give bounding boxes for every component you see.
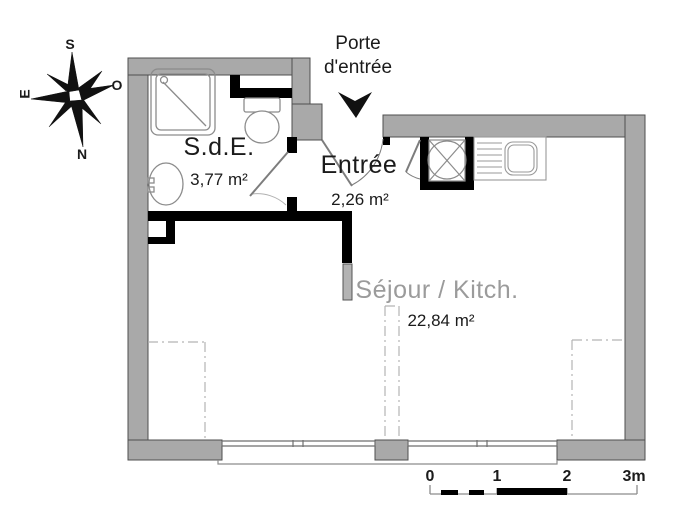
entry-door-label: Porte d'entrée — [324, 32, 392, 80]
compass-west-label: O — [112, 77, 123, 93]
scale-tick-1: 1 — [493, 468, 502, 486]
entry-arrow-icon — [338, 92, 372, 118]
scale-tick-0: 0 — [426, 468, 435, 486]
room-area-sde: 3,77 m² — [190, 170, 248, 190]
ceiling-slope-lines — [148, 306, 625, 440]
compass-east-label: E — [17, 89, 33, 98]
scale-tick-3m: 3m — [622, 468, 645, 486]
floor-plan-page: Porte d'entrée S O N E S.d.E. 3,77 m² En… — [0, 0, 700, 525]
exterior-walls — [128, 58, 645, 460]
scale-tick-2: 2 — [563, 468, 572, 486]
compass-north-label: N — [77, 146, 87, 162]
room-area-sejour: 22,84 m² — [407, 311, 474, 331]
window-left — [222, 440, 375, 447]
room-name-sejour: Séjour / Kitch. — [355, 276, 518, 305]
sde-door-leaf — [250, 152, 288, 205]
shower-icon — [151, 69, 215, 135]
room-name-sde: S.d.E. — [183, 133, 254, 162]
window-right — [408, 440, 557, 447]
compass-south-label: S — [65, 36, 74, 52]
closet-door-leaf — [406, 140, 420, 179]
room-name-entree: Entrée — [321, 151, 398, 180]
window-sill — [218, 460, 557, 464]
scale-bar — [430, 485, 637, 495]
room-area-entree: 2,26 m² — [331, 190, 389, 210]
sejour-door-leaf — [343, 264, 352, 300]
washbasin-icon — [148, 163, 183, 205]
appliance-icon — [428, 140, 466, 181]
interior-walls — [148, 75, 474, 263]
kitchen-sink-icon — [474, 137, 546, 180]
compass-rose-icon — [31, 52, 114, 147]
